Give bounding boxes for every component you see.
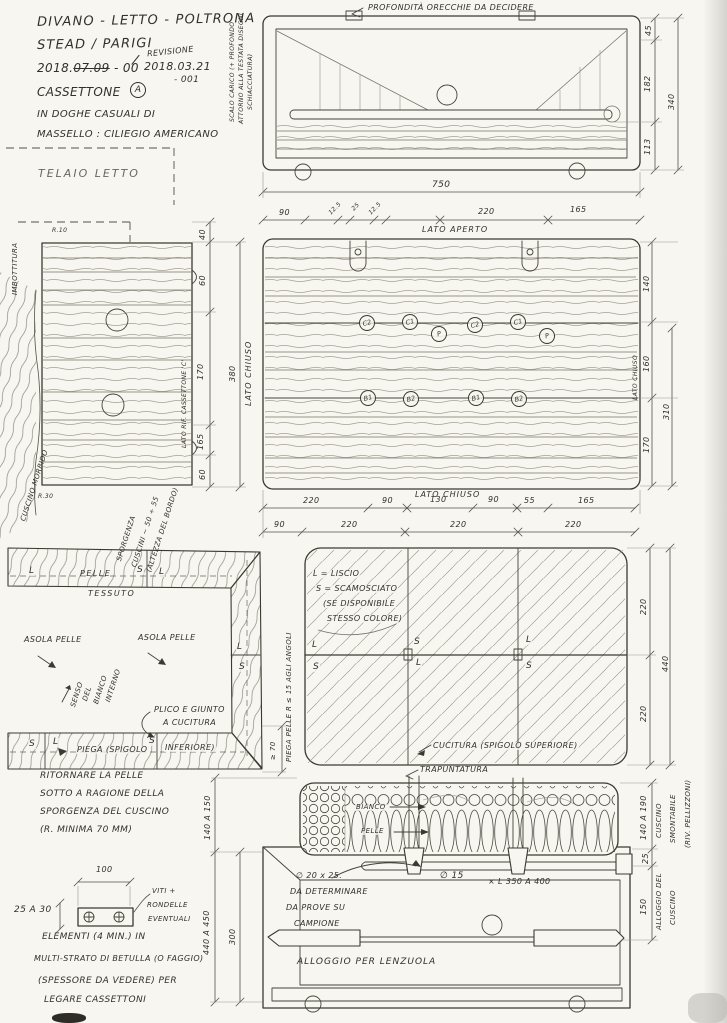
tessuto-label: TESSUTO <box>88 590 135 598</box>
dim-100: 100 <box>96 866 112 874</box>
dim-182: 182 <box>644 76 652 92</box>
bolt-dia-label: ∅ 15 <box>440 872 464 881</box>
cuscino-note-3: (RIV. PELLIZZONI) <box>685 779 692 848</box>
dim-25: 25 <box>642 853 650 864</box>
scanned-technical-drawing: DIVANO - LETTO - POLTRONA STEAD / PARIGI… <box>0 0 727 1023</box>
scan-smudge-bottom-right <box>688 993 727 1023</box>
dim-300: 300 <box>229 929 237 945</box>
dim-220-bottom: 220 <box>640 706 648 722</box>
side-panel-drawing <box>0 148 197 540</box>
dim-440: 440 <box>662 656 670 672</box>
pelle-note-2: SOTTO A RAGIONE DELLA <box>40 790 164 799</box>
elementi-note-4: LEGARE CASSETTONI <box>44 996 146 1005</box>
pelle-note-4: (R. MINIMA 70 MM) <box>40 826 132 835</box>
corner-letter-S2: S <box>238 663 246 672</box>
side-note-2: ATTORNO ALLA TESTATA DISEGNI <box>239 13 245 124</box>
bolt-note-1: ∅ 20 x 25. <box>296 872 342 880</box>
bolt-note-4: CAMPIONE <box>294 920 340 928</box>
dim-170: 170 <box>643 437 651 453</box>
asola-pelle-label-1: ASOLA PELLE <box>24 636 82 644</box>
lato-aperto-label: LATO APERTO <box>422 226 488 234</box>
corner-letter-L4: L <box>52 738 59 747</box>
item-badge: A <box>130 82 146 98</box>
plate-detail-drawing <box>78 894 150 926</box>
dim-40: 40 <box>199 229 207 240</box>
dim-140: 140 <box>643 276 651 292</box>
bolt-length-label: × L 350 A 400 <box>488 878 551 886</box>
corner-letter-L3: L <box>236 643 243 652</box>
side-note-3: SCHIACCIATURA) <box>248 54 254 110</box>
material-note-2: MASSELLO : CILIEGIO AMERICANO <box>37 130 219 140</box>
dim-140-150: 140 A 150 <box>204 795 212 840</box>
bolt-note-3: DA PROVE SU <box>286 904 345 912</box>
dim-220-top: 220 <box>640 599 648 615</box>
date-struck: 07.09 <box>73 61 109 75</box>
piega-label-1: PIEGA (SPIGOLO <box>76 746 148 754</box>
alloggio-cuscino-2: CUSCINO <box>670 890 677 925</box>
grid-letter-L2: L <box>525 636 532 645</box>
corner-leather-detail-drawing <box>8 548 262 769</box>
dim-750: 750 <box>432 181 450 190</box>
corner-letter-L1: L <box>28 567 35 576</box>
dim-r2-220c: 220 <box>565 521 581 529</box>
pelle-note-3: SPORGENZA DEL CUSCINO <box>40 808 169 817</box>
revision-number: - 001 <box>174 76 199 85</box>
dim-r1-165: 165 <box>578 497 594 505</box>
side-note-1: SCALO CARICO (+ PROFONDO <box>230 22 236 122</box>
dim-row-90: 90 <box>279 209 290 217</box>
legend-disponibile: (SE DISPONIBILE <box>322 600 396 608</box>
dim-150: 150 <box>640 899 648 915</box>
cuscino-note-2: SMONTABILE <box>670 794 677 843</box>
dim-310: 310 <box>663 404 671 420</box>
material-note-1: IN DOGHE CASUALI DI <box>37 110 155 120</box>
grid-letter-L1: L <box>311 641 318 650</box>
grid-letter-L3: L <box>415 659 422 668</box>
lato-chiuso-left-label: LATO CHIUSO <box>245 341 253 406</box>
dim-160: 160 <box>643 356 651 372</box>
legend-colore: STESSO COLORE) <box>326 615 403 623</box>
scan-smudge-bottom-left <box>52 1013 86 1023</box>
dim-r1-90b: 90 <box>488 496 499 504</box>
drawing-title: DIVANO - LETTO - POLTRONA <box>37 12 256 29</box>
grid-letter-S2: S <box>312 663 320 672</box>
dim-r1-220: 220 <box>303 497 319 505</box>
dim-row-220: 220 <box>478 208 494 216</box>
trapuntatura-label: TRAPUNTATURA <box>420 766 488 774</box>
plico-label-1: PLICO E GIUNTO <box>154 706 225 714</box>
drawing-subtitle: STEAD / PARIGI <box>37 37 153 52</box>
dim-r2-220b: 220 <box>450 521 466 529</box>
dim-45: 45 <box>645 25 653 36</box>
legend-scamosciato: S = SCAMOSCIATO <box>315 585 398 593</box>
elementi-note-3: (SPESSORE DA VEDERE) PER <box>38 977 177 986</box>
viti-label-2: RONDELLE <box>147 902 188 909</box>
pelle-section-label: PELLE <box>360 828 385 835</box>
dim-380: 380 <box>229 366 237 382</box>
dim-r2-90: 90 <box>274 521 285 529</box>
piega-pelle-note: PIEGA PELLE R ≤ 15 AGLI ANGOLI <box>286 632 293 762</box>
dim-r2-220a: 220 <box>341 521 357 529</box>
lato-chiuso-bottom-label: LATO CHIUSO <box>415 491 480 499</box>
viti-label-3: EVENTUALI <box>148 916 191 923</box>
alloggio-lenzuola-label: ALLOGGIO PER LENZUOLA <box>297 958 436 967</box>
cuscino-note-1: CUSCINO <box>656 803 663 838</box>
cucitura-label: CUCITURA (SPIGOLO SUPERIORE) <box>432 742 579 750</box>
piega-label-2: INFERIORE) <box>164 744 216 752</box>
dim-70: ≥ 70 <box>270 741 277 760</box>
dim-340: 340 <box>668 94 676 110</box>
revision-date: 2018.03.21 <box>144 61 211 72</box>
alloggio-cuscino-1: ALLOGGIO DEL <box>656 873 663 930</box>
pelle-note-1: RITORNARE LA PELLE <box>40 772 144 781</box>
dim-row-165: 165 <box>570 206 586 214</box>
asola-pelle-label-2: ASOLA PELLE <box>138 634 196 642</box>
elementi-note-2: MULTI-STRATO DI BETULLA (O FAGGIO) <box>34 955 204 963</box>
dim-140-190: 140 A 190 <box>640 795 648 840</box>
grid-letter-S1: S <box>413 638 421 647</box>
plico-label-2: A CUCITURA <box>163 719 216 727</box>
lato-chiuso-right-label: LATO CHIUSO <box>633 355 639 400</box>
corner-letter-L2: L <box>158 568 165 577</box>
dim-113: 113 <box>644 139 652 155</box>
dim-60b: 60 <box>199 469 207 480</box>
dim-r1-130: 130 <box>430 496 446 504</box>
telaio-letto-label: TELAIO LETTO <box>38 168 140 179</box>
item-name: CASSETTONE <box>37 86 121 98</box>
corner-letter-S4: S <box>148 737 156 746</box>
radius-top-label: R.10 <box>52 228 67 234</box>
pelle-label: PELLE <box>80 570 111 578</box>
dim-r1-90a: 90 <box>382 497 393 505</box>
dim-170b: 170 <box>197 364 205 380</box>
viti-label-1: VITI + <box>152 888 176 895</box>
plan-view-drawing <box>263 239 640 489</box>
bianco-label: BIANCO <box>355 804 387 811</box>
corner-letter-S3: S <box>28 740 36 749</box>
dim-165b: 165 <box>197 434 205 450</box>
grid-letter-S3: S <box>525 662 533 671</box>
dim-25-30: 25 A 30 <box>14 906 52 915</box>
panel-ref-label: LATO RIF. CASSETTONE 'C' <box>182 359 188 448</box>
corner-letter-S1: S <box>136 566 144 575</box>
dim-440-450: 440 A 450 <box>203 910 211 955</box>
front-top-note: PROFONDITÀ ORECCHIE DA DECIDERE <box>368 4 534 12</box>
dim-r1-55: 55 <box>524 497 535 505</box>
front-elevation-drawing <box>263 8 640 180</box>
scan-edge-shadow <box>703 0 727 1023</box>
bolt-note-2: DA DETERMINARE <box>290 888 368 896</box>
imbottitura-label: IMBOTTITURA <box>12 243 19 295</box>
elementi-note-1: ELEMENTI (4 MIN.) IN <box>42 933 145 942</box>
date-year: 2018.07.09 - 00 <box>37 62 139 74</box>
radius-bottom-label: R.30 <box>38 494 53 500</box>
dim-60a: 60 <box>199 275 207 286</box>
legend-liscio: L = LISCIO <box>312 570 360 578</box>
